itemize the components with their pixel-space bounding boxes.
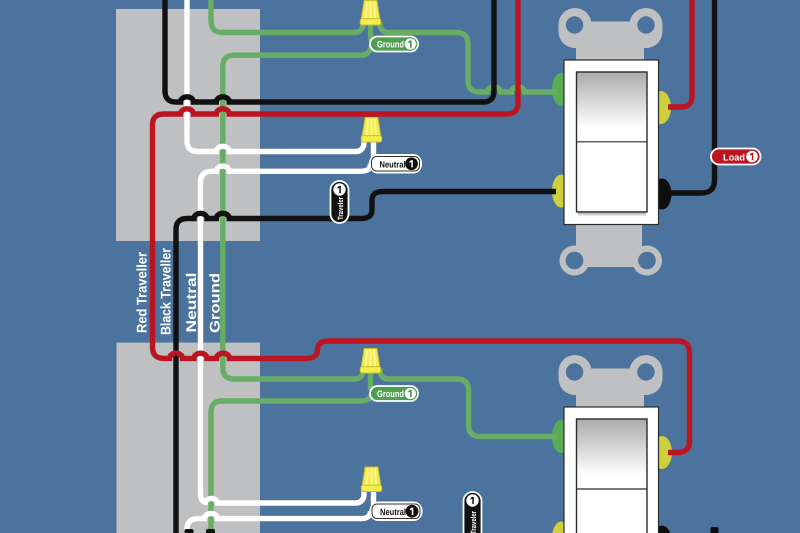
svg-text:Black Traveller: Black Traveller	[158, 248, 174, 335]
svg-text:Traveler: Traveler	[336, 197, 345, 220]
svg-text:Red Traveller: Red Traveller	[134, 251, 150, 333]
svg-text:Load: Load	[723, 153, 745, 164]
svg-text:Ground: Ground	[377, 389, 404, 400]
svg-text:Neutral: Neutral	[380, 507, 406, 517]
svg-text:Ground: Ground	[207, 273, 223, 333]
svg-text:Ground: Ground	[377, 40, 404, 51]
svg-text:Traveler: Traveler	[469, 511, 478, 533]
svg-text:Neutral: Neutral	[380, 159, 406, 169]
svg-text:Neutral: Neutral	[183, 273, 199, 333]
